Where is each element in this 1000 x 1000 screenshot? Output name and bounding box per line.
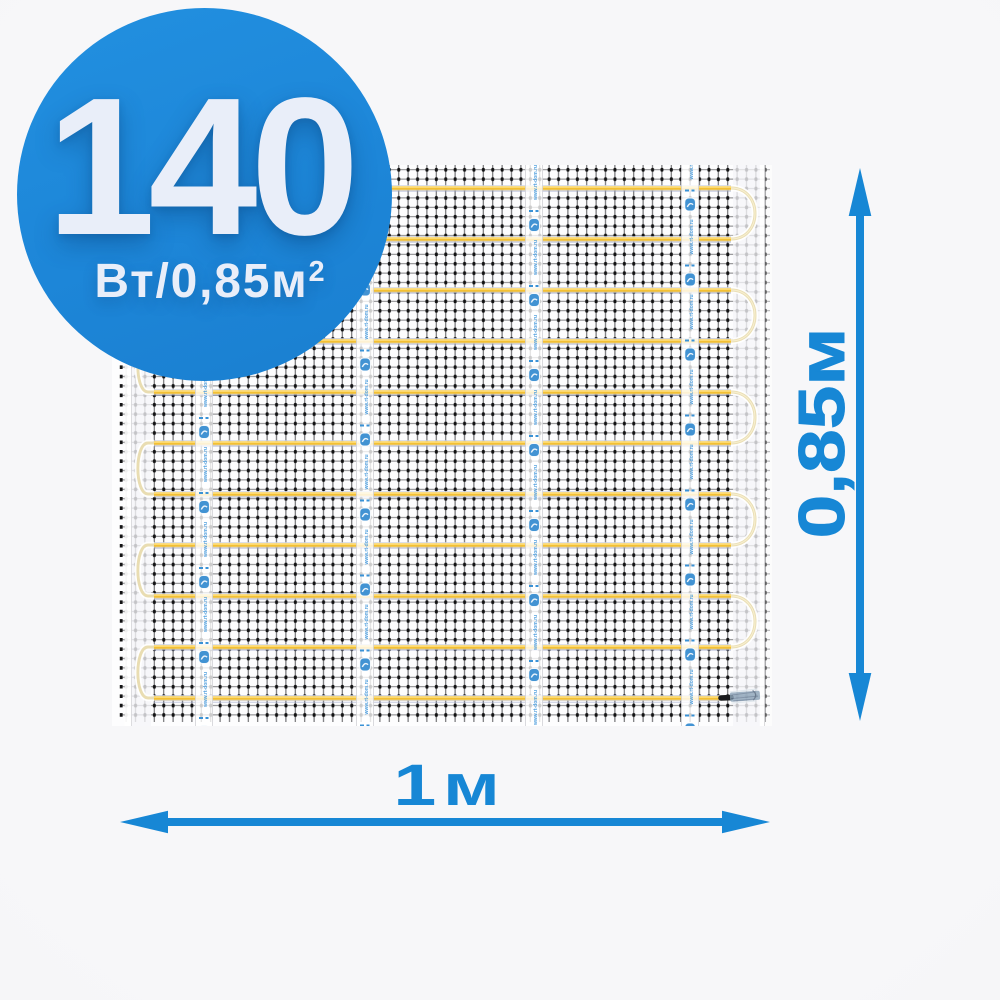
svg-text:0,85м: 0,85м bbox=[786, 328, 858, 539]
